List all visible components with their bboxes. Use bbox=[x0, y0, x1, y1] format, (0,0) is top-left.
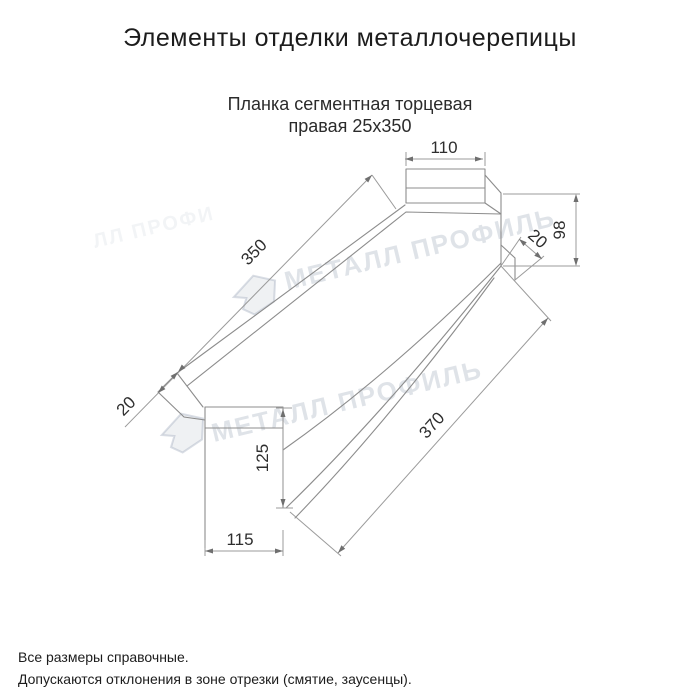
watermark-text-fragment: ЛЛ ПРОФИ bbox=[91, 203, 217, 253]
dim-115: 115 bbox=[205, 530, 283, 556]
footnotes: Все размеры справочные. Допускаются откл… bbox=[18, 646, 412, 690]
arrowhead bbox=[205, 549, 213, 554]
top-tab-end-folds bbox=[485, 175, 501, 214]
edge-left-end bbox=[177, 373, 203, 407]
technical-drawing: ЛЛ ПРОФИ МЕТАЛЛ ПРОФИЛЬ МЕТАЛЛ ПРОФИЛЬ bbox=[0, 0, 700, 700]
watermark-partial-left: ЛЛ ПРОФИ bbox=[91, 203, 217, 253]
arrowhead bbox=[574, 258, 579, 266]
footnote-1: Все размеры справочные. bbox=[18, 646, 412, 668]
dim-350-label: 350 bbox=[237, 235, 270, 269]
arrowhead bbox=[475, 157, 483, 162]
arrowhead bbox=[281, 499, 286, 507]
dim-98-label: 98 bbox=[550, 221, 569, 240]
drawing-page: Элементы отделки металлочерепицы Планка … bbox=[0, 0, 700, 700]
dim-110: 110 bbox=[405, 138, 485, 166]
dim-110-label: 110 bbox=[430, 138, 457, 157]
dim-125-label: 125 bbox=[253, 444, 272, 472]
dim-115-label: 115 bbox=[226, 530, 253, 549]
edge-top bbox=[177, 205, 405, 373]
arrowhead bbox=[275, 549, 283, 554]
metall-profil-logo-icon bbox=[230, 271, 282, 319]
metall-profil-logo-icon bbox=[158, 409, 210, 457]
end-plate bbox=[205, 407, 283, 548]
arrowhead bbox=[574, 194, 579, 202]
arrowhead bbox=[178, 365, 185, 373]
dim-20-left-label: 20 bbox=[113, 393, 140, 420]
watermark-upper: МЕТАЛЛ ПРОФИЛЬ bbox=[230, 202, 559, 319]
watermark-lower: МЕТАЛЛ ПРОФИЛЬ bbox=[158, 354, 486, 457]
top-tab bbox=[406, 169, 485, 203]
footnote-2: Допускаются отклонения в зоне отрезки (с… bbox=[18, 668, 412, 690]
watermark-text: МЕТАЛЛ ПРОФИЛЬ bbox=[281, 202, 558, 296]
dim-370-label: 370 bbox=[415, 408, 448, 442]
